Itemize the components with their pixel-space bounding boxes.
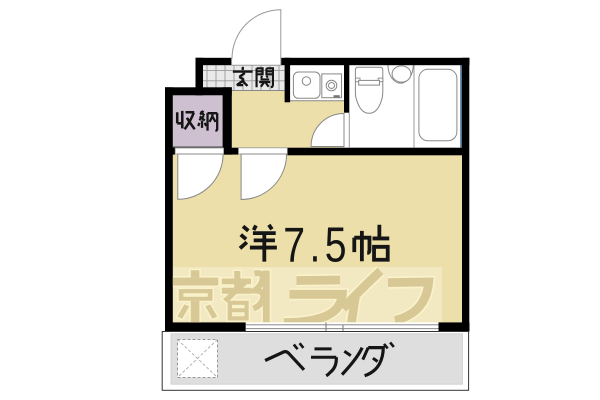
svg-text:7.5: 7.5 xyxy=(283,218,351,272)
